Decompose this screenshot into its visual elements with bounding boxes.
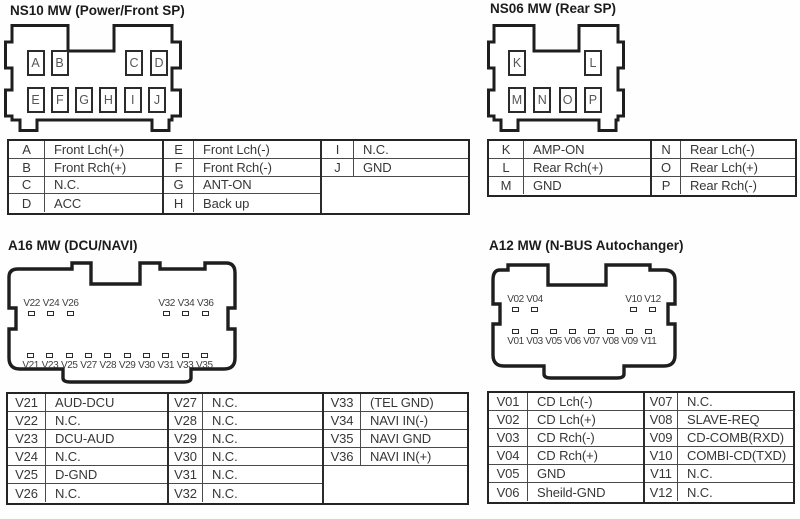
connector-pin: V09 <box>620 329 639 347</box>
ns10-title: NS10 MW (Power/Front SP) <box>10 3 185 18</box>
pin-id-cell: M <box>489 177 524 195</box>
a16-pin-table: V21 AUD-DCU V22 N.C. V23 DCU-AUD V24 N.C… <box>6 392 469 505</box>
pin-slot <box>85 353 92 358</box>
pin-label: V31 <box>157 360 174 371</box>
ns06-connector: K L MNOP <box>487 24 625 132</box>
signal-name-cell: NAVI IN(-) <box>361 412 467 429</box>
pin-slot <box>569 329 576 334</box>
connector-pin: V35 <box>195 353 214 371</box>
pin-id-cell: V09 <box>645 429 678 446</box>
pin-slot <box>143 353 150 358</box>
pin-label: V34 <box>178 298 195 309</box>
pin-id-cell: V10 <box>645 447 678 464</box>
table-row: V31 N.C. <box>169 466 322 484</box>
connector-pin: F <box>51 87 69 113</box>
pin-label: V24 <box>43 298 60 309</box>
a16-bottom-pin-row: V21 V23 V25 V27 V28 V29 V30 V31 <box>21 353 214 371</box>
pin-id-cell: E <box>164 141 194 158</box>
pin-slot <box>163 311 170 316</box>
pin-id-cell: V26 <box>8 484 46 502</box>
a16-title: A16 MW (DCU/NAVI) <box>8 238 138 253</box>
pin-id-cell: J <box>322 159 354 176</box>
pin-label: V02 <box>507 294 524 305</box>
connector-pin: A <box>27 50 45 76</box>
table-row: V28 N.C. <box>169 412 322 430</box>
connector-pin: V08 <box>601 329 620 347</box>
connector-outline <box>6 26 181 131</box>
signal-name-cell: Front Lch(+) <box>45 141 162 158</box>
pin-id-cell: V25 <box>8 466 46 483</box>
pin-slot <box>531 329 538 334</box>
signal-name-cell: ACC <box>45 194 162 212</box>
signal-name-cell: (TEL GND) <box>361 394 467 411</box>
signal-name-cell: Rear Lch(-) <box>681 141 795 158</box>
pin-label: V06 <box>564 336 581 347</box>
pin-id-cell: V34 <box>324 412 361 429</box>
ns06-top-right-pin-row: L <box>584 50 602 76</box>
pin-id-cell: V21 <box>8 394 46 411</box>
connector-pin: V22 <box>22 298 41 316</box>
table-row: V10 COMBI-CD(TXD) <box>645 447 793 465</box>
signal-name-cell: D-GND <box>46 466 167 483</box>
pin-id-cell: V27 <box>169 394 203 411</box>
a12-top-left-pin-row: V02 V04 <box>506 294 544 312</box>
pin-slot <box>607 329 614 334</box>
table-row: V27 N.C. <box>169 394 322 412</box>
connector-pin: L <box>584 50 602 76</box>
connector-pin: V01 <box>506 329 525 347</box>
connector-pin: V32 <box>157 298 176 316</box>
pin-label: V30 <box>138 360 155 371</box>
pin-label: V22 <box>23 298 40 309</box>
connector-pin: P <box>584 87 602 113</box>
table-row: B Front Rch(+) <box>9 159 162 177</box>
signal-name-cell: NAVI GND <box>361 430 467 447</box>
table-row: V25 D-GND <box>8 466 167 484</box>
pin-id-cell: O <box>652 159 681 176</box>
pin-label: V10 <box>625 294 642 305</box>
pin-id-cell: V05 <box>489 465 528 482</box>
pin-id-cell: L <box>489 159 524 176</box>
connector-pin: V03 <box>525 329 544 347</box>
pin-id-cell: V23 <box>8 430 46 447</box>
table-row: V29 N.C. <box>169 430 322 448</box>
pin-id-cell: V01 <box>489 393 528 410</box>
table-row: F Front Rch(-) <box>164 159 320 177</box>
signal-name-cell: N.C. <box>203 448 322 465</box>
signal-name-cell: CD Rch(-) <box>528 429 643 446</box>
pin-slot <box>104 353 111 358</box>
signal-name-cell: GND <box>528 465 643 482</box>
signal-name-cell: N.C. <box>45 177 162 194</box>
table-row: J GND <box>322 159 468 177</box>
pin-label: V21 <box>22 360 39 371</box>
connector-pin: E <box>27 87 45 113</box>
pin-label: V27 <box>80 360 97 371</box>
table-column-group: V01 CD Lch(-) V02 CD Lch(+) V03 CD Rch(-… <box>489 393 643 502</box>
connector-pin: V34 <box>176 298 195 316</box>
table-row: D ACC <box>9 194 162 212</box>
pin-id-cell: V11 <box>645 465 678 482</box>
connector-pin: B <box>51 50 69 76</box>
table-row: H Back up <box>164 194 320 212</box>
pin-slot <box>67 311 74 316</box>
connector-pin: V30 <box>137 353 156 371</box>
ns06-connector-outline-svg <box>487 24 625 132</box>
pin-id-cell: G <box>164 177 194 194</box>
pin-id-cell: D <box>9 194 45 212</box>
pin-slot <box>512 307 519 312</box>
pin-slot <box>47 311 54 316</box>
table-row: V22 N.C. <box>8 412 167 430</box>
signal-name-cell: ANT-ON <box>194 177 320 194</box>
signal-name-cell: CD Lch(+) <box>528 411 643 428</box>
signal-name-cell: GND <box>524 177 650 195</box>
signal-name-cell: N.C. <box>203 484 322 502</box>
table-column-group: I N.C. J GND <box>320 141 468 213</box>
ns10-connector: AB CD EFGHIJ <box>4 24 186 132</box>
signal-name-cell: SLAVE-REQ <box>678 411 793 428</box>
connector-pin: K <box>508 50 526 76</box>
pin-label: V04 <box>526 294 543 305</box>
ns10-pin-table: A Front Lch(+) B Front Rch(+) C N.C. D A… <box>7 139 470 215</box>
connector-pin: V10 <box>624 294 643 312</box>
table-column-group: V07 N.C. V08 SLAVE-REQ V09 CD-COMB(RXD) … <box>643 393 793 502</box>
pin-slot <box>66 353 73 358</box>
a16-top-left-pin-row: V22 V24 V26 <box>22 298 80 316</box>
table-row: V24 N.C. <box>8 448 167 466</box>
table-row: V02 CD Lch(+) <box>489 411 643 429</box>
pin-slot <box>162 353 169 358</box>
ns06-pin-table: K AMP-ON L Rear Rch(+) M GND N Rear Lch(… <box>487 139 797 197</box>
pin-id-cell: V35 <box>324 430 361 447</box>
signal-name-cell: N.C. <box>46 448 167 465</box>
ns06-bottom-pin-row: MNOP <box>508 87 602 113</box>
signal-name-cell: Rear Rch(+) <box>524 159 650 176</box>
connector-outline <box>493 265 675 378</box>
pin-label: V11 <box>641 336 657 347</box>
signal-name-cell: N.C. <box>203 412 322 429</box>
signal-name-cell: NAVI IN(+) <box>361 448 467 465</box>
pin-slot <box>202 311 209 316</box>
signal-name-cell: CD Lch(-) <box>528 393 643 410</box>
a16-top-right-pin-row: V32 V34 V36 <box>157 298 215 316</box>
pin-id-cell: V08 <box>645 411 678 428</box>
signal-name-cell: N.C. <box>203 394 322 411</box>
pin-label: V03 <box>526 336 543 347</box>
a12-title: A12 MW (N-BUS Autochanger) <box>489 238 684 253</box>
table-row: V33 (TEL GND) <box>324 394 467 412</box>
pin-slot <box>588 329 595 334</box>
pin-id-cell: C <box>9 177 45 194</box>
signal-name-cell: N.C. <box>46 484 167 502</box>
signal-name-cell: N.C. <box>354 141 468 158</box>
connector-pin: V33 <box>175 353 194 371</box>
pin-id-cell: V31 <box>169 466 203 483</box>
connector-pin: D <box>150 50 168 76</box>
pin-id-cell: H <box>164 194 194 212</box>
pin-slot <box>649 307 656 312</box>
signal-name-cell: Front Lch(-) <box>194 141 320 158</box>
pin-slot <box>550 329 557 334</box>
a12-connector: V02 V04 V10 V12 V01 V03 <box>488 252 680 386</box>
signal-name-cell: CD-COMB(RXD) <box>678 429 793 446</box>
table-row: V11 N.C. <box>645 465 793 483</box>
signal-name-cell: N.C. <box>203 466 322 483</box>
connector-pin: V24 <box>41 298 60 316</box>
table-row: V01 CD Lch(-) <box>489 393 643 411</box>
pin-label: V12 <box>644 294 661 305</box>
table-row: O Rear Lch(+) <box>652 159 795 177</box>
table-row: V05 GND <box>489 465 643 483</box>
pin-id-cell: V12 <box>645 483 678 501</box>
table-row: V35 NAVI GND <box>324 430 467 448</box>
table-row: V30 N.C. <box>169 448 322 466</box>
signal-name-cell: N.C. <box>203 430 322 447</box>
pin-slot <box>28 311 35 316</box>
pin-slot <box>182 311 189 316</box>
connector-pin: V28 <box>98 353 117 371</box>
table-row: N Rear Lch(-) <box>652 141 795 159</box>
table-row: V21 AUD-DCU <box>8 394 167 412</box>
table-row: V04 CD Rch(+) <box>489 447 643 465</box>
pin-id-cell: V22 <box>8 412 46 429</box>
connector-pin: V04 <box>525 294 544 312</box>
pin-id-cell: V07 <box>645 393 678 410</box>
signal-name-cell: AUD-DCU <box>46 394 167 411</box>
connector-pin: C <box>125 50 143 76</box>
signal-name-cell: GND <box>354 159 468 176</box>
pin-id-cell: N <box>652 141 681 158</box>
table-row: L Rear Rch(+) <box>489 159 650 177</box>
a12-top-right-pin-row: V10 V12 <box>624 294 662 312</box>
pin-label: V28 <box>100 360 117 371</box>
connector-pin: O <box>559 87 577 113</box>
pin-id-cell: B <box>9 159 45 176</box>
pin-slot <box>182 353 189 358</box>
pin-id-cell: V06 <box>489 483 528 501</box>
pin-label: V09 <box>621 336 638 347</box>
table-row: I N.C. <box>322 141 468 159</box>
connector-pin: V36 <box>196 298 215 316</box>
pin-label: V05 <box>545 336 562 347</box>
connector-pin: G <box>75 87 93 113</box>
table-row: V08 SLAVE-REQ <box>645 411 793 429</box>
pin-label: V25 <box>61 360 78 371</box>
table-column-group: A Front Lch(+) B Front Rch(+) C N.C. D A… <box>9 141 162 213</box>
table-row: V06 Sheild-GND <box>489 483 643 501</box>
table-row: V09 CD-COMB(RXD) <box>645 429 793 447</box>
connector-pin: V29 <box>117 353 136 371</box>
pin-id-cell: V33 <box>324 394 361 411</box>
pin-label: V29 <box>119 360 136 371</box>
a16-connector: V22 V24 V26 V32 V34 V36 <box>6 252 238 386</box>
pin-label: V33 <box>177 360 194 371</box>
pin-slot <box>124 353 131 358</box>
table-column-group: V27 N.C. V28 N.C. V29 N.C. V30 N.C. V31 … <box>167 394 322 503</box>
pin-id-cell: P <box>652 177 681 195</box>
pin-label: V07 <box>583 336 600 347</box>
connector-pin: V26 <box>61 298 80 316</box>
connector-pin: H <box>99 87 117 113</box>
connector-pin: N <box>533 87 551 113</box>
a12-connector-outline-svg <box>488 252 680 386</box>
ns06-title: NS06 MW (Rear SP) <box>490 1 616 16</box>
pin-slot <box>27 353 34 358</box>
pin-id-cell: I <box>322 141 354 158</box>
pin-slot <box>201 353 208 358</box>
pin-id-cell: F <box>164 159 194 176</box>
pin-id-cell: V30 <box>169 448 203 465</box>
table-row: M GND <box>489 177 650 195</box>
connector-pin: V25 <box>60 353 79 371</box>
table-column-group: E Front Lch(-) F Front Rch(-) G ANT-ON H… <box>162 141 320 213</box>
connector-pin: V06 <box>563 329 582 347</box>
connector-pin: V07 <box>582 329 601 347</box>
pin-slot <box>531 307 538 312</box>
wiring-diagram-page: NS10 MW (Power/Front SP) AB CD EFGHIJ A … <box>0 0 800 519</box>
signal-name-cell: Front Rch(-) <box>194 159 320 176</box>
pin-label: V35 <box>196 360 213 371</box>
pin-label: V23 <box>42 360 59 371</box>
signal-name-cell: N.C. <box>46 412 167 429</box>
pin-id-cell: V32 <box>169 484 203 502</box>
table-row: G ANT-ON <box>164 177 320 195</box>
connector-pin: J <box>148 87 166 113</box>
signal-name-cell: N.C. <box>678 483 793 501</box>
ns10-top-left-pin-row: AB <box>27 50 69 76</box>
pin-slot <box>46 353 53 358</box>
table-row: A Front Lch(+) <box>9 141 162 159</box>
pin-slot <box>626 329 633 334</box>
table-column-group: N Rear Lch(-) O Rear Lch(+) P Rear Rch(-… <box>650 141 795 195</box>
ns10-top-right-pin-row: CD <box>125 50 168 76</box>
pin-id-cell: V03 <box>489 429 528 446</box>
table-row: P Rear Rch(-) <box>652 177 795 195</box>
ns06-top-left-pin-row: K <box>508 50 526 76</box>
connector-outline <box>489 26 624 131</box>
table-row: V23 DCU-AUD <box>8 430 167 448</box>
signal-name-cell: Rear Lch(+) <box>681 159 795 176</box>
table-row: V12 N.C. <box>645 483 793 501</box>
table-row: V32 N.C. <box>169 484 322 502</box>
signal-name-cell: N.C. <box>678 393 793 410</box>
connector-pin: I <box>124 87 142 113</box>
pin-id-cell: V28 <box>169 412 203 429</box>
pin-id-cell: K <box>489 141 524 158</box>
table-row: K AMP-ON <box>489 141 650 159</box>
signal-name-cell: Rear Rch(-) <box>681 177 795 195</box>
signal-name-cell: Front Rch(+) <box>45 159 162 176</box>
pin-id-cell: V04 <box>489 447 528 464</box>
pin-slot <box>512 329 519 334</box>
ns10-connector-outline-svg <box>4 24 186 132</box>
table-column-group: K AMP-ON L Rear Rch(+) M GND <box>489 141 650 195</box>
signal-name-cell: DCU-AUD <box>46 430 167 447</box>
signal-name-cell: AMP-ON <box>524 141 650 158</box>
table-row: C N.C. <box>9 177 162 195</box>
connector-pin: V23 <box>40 353 59 371</box>
pin-label: V01 <box>507 336 524 347</box>
connector-pin: V27 <box>79 353 98 371</box>
connector-pin: V02 <box>506 294 525 312</box>
connector-pin: V31 <box>156 353 175 371</box>
pin-label: V08 <box>602 336 619 347</box>
pin-label: V26 <box>62 298 79 309</box>
signal-name-cell: N.C. <box>678 465 793 482</box>
connector-pin: V11 <box>639 329 658 347</box>
connector-pin: V12 <box>643 294 662 312</box>
pin-slot <box>630 307 637 312</box>
table-row: V03 CD Rch(-) <box>489 429 643 447</box>
table-column-group: V21 AUD-DCU V22 N.C. V23 DCU-AUD V24 N.C… <box>8 394 167 503</box>
pin-id-cell: A <box>9 141 45 158</box>
signal-name-cell: CD Rch(+) <box>528 447 643 464</box>
connector-pin: V05 <box>544 329 563 347</box>
table-column-group: V33 (TEL GND) V34 NAVI IN(-) V35 NAVI GN… <box>322 394 467 503</box>
table-row: V34 NAVI IN(-) <box>324 412 467 430</box>
connector-pin: M <box>508 87 526 113</box>
table-row: E Front Lch(-) <box>164 141 320 159</box>
table-row: V07 N.C. <box>645 393 793 411</box>
table-row: V26 N.C. <box>8 484 167 502</box>
pin-id-cell: V02 <box>489 411 528 428</box>
pin-id-cell: V29 <box>169 430 203 447</box>
pin-id-cell: V36 <box>324 448 361 465</box>
pin-label: V36 <box>197 298 214 309</box>
ns10-bottom-pin-row: EFGHIJ <box>27 87 166 113</box>
a12-pin-table: V01 CD Lch(-) V02 CD Lch(+) V03 CD Rch(-… <box>487 391 795 504</box>
table-row: V36 NAVI IN(+) <box>324 448 467 466</box>
a12-bottom-pin-row: V01 V03 V05 V06 V07 V08 V09 V11 <box>506 329 658 347</box>
signal-name-cell: Sheild-GND <box>528 483 643 501</box>
connector-pin: V21 <box>21 353 40 371</box>
pin-label: V32 <box>158 298 175 309</box>
signal-name-cell: COMBI-CD(TXD) <box>678 447 793 464</box>
signal-name-cell: Back up <box>194 194 320 212</box>
pin-slot <box>645 329 652 334</box>
pin-id-cell: V24 <box>8 448 46 465</box>
